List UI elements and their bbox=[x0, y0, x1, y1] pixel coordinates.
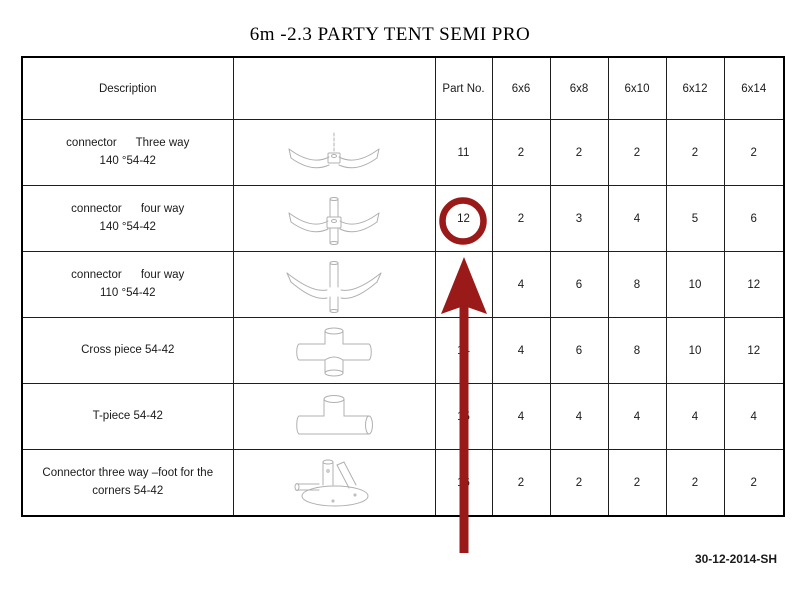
description-cell: Cross piece 54-42 bbox=[22, 318, 233, 384]
qty-cell: 2 bbox=[492, 186, 550, 252]
col-header-illustration bbox=[233, 57, 435, 120]
qty-cell: 4 bbox=[666, 384, 724, 450]
qty-cell: 10 bbox=[666, 318, 724, 384]
table-row: connector Three way 140 °54-42 11 2 2 2 … bbox=[22, 120, 784, 186]
three-way-connector-140-icon bbox=[279, 125, 389, 181]
qty-cell: 6 bbox=[724, 186, 784, 252]
document-page: 6m -2.3 PARTY TENT SEMI PRO Description … bbox=[0, 0, 800, 600]
qty-cell: 8 bbox=[608, 252, 666, 318]
col-header-6x12: 6x12 bbox=[666, 57, 724, 120]
four-way-connector-140-icon bbox=[279, 191, 389, 247]
table-row: connector four way 140 °54-42 12 2 3 4 5… bbox=[22, 186, 784, 252]
table-row: connector four way 110 °54-42 4 6 8 10 1… bbox=[22, 252, 784, 318]
qty-cell: 5 bbox=[666, 186, 724, 252]
illustration-cell bbox=[233, 450, 435, 517]
illustration-cell bbox=[233, 120, 435, 186]
table-row: Connector three way –foot for the corner… bbox=[22, 450, 784, 517]
illustration-cell bbox=[233, 318, 435, 384]
qty-cell: 12 bbox=[724, 318, 784, 384]
qty-cell: 6 bbox=[550, 252, 608, 318]
qty-cell: 2 bbox=[666, 450, 724, 517]
table-row: Cross piece 54-42 14 4 6 8 10 bbox=[22, 318, 784, 384]
part-no-cell bbox=[435, 252, 492, 318]
qty-cell: 6 bbox=[550, 318, 608, 384]
qty-cell: 2 bbox=[550, 450, 608, 517]
qty-cell: 2 bbox=[608, 120, 666, 186]
part-no-cell: 15 bbox=[435, 384, 492, 450]
col-header-6x14: 6x14 bbox=[724, 57, 784, 120]
qty-cell: 10 bbox=[666, 252, 724, 318]
qty-cell: 2 bbox=[550, 120, 608, 186]
qty-cell: 2 bbox=[608, 450, 666, 517]
table-row: T-piece 54-42 15 4 4 4 4 4 bbox=[22, 384, 784, 450]
qty-cell: 4 bbox=[492, 252, 550, 318]
qty-cell: 12 bbox=[724, 252, 784, 318]
qty-cell: 4 bbox=[608, 186, 666, 252]
qty-cell: 4 bbox=[724, 384, 784, 450]
description-cell: T-piece 54-42 bbox=[22, 384, 233, 450]
description-cell: Connector three way –foot for the corner… bbox=[22, 450, 233, 517]
qty-cell: 2 bbox=[492, 450, 550, 517]
col-header-6x6: 6x6 bbox=[492, 57, 550, 120]
t-piece-icon bbox=[279, 389, 389, 445]
description-cell: connector Three way 140 °54-42 bbox=[22, 120, 233, 186]
illustration-cell bbox=[233, 384, 435, 450]
qty-cell: 4 bbox=[492, 384, 550, 450]
qty-cell: 2 bbox=[724, 450, 784, 517]
part-no-cell: 12 bbox=[435, 186, 492, 252]
illustration-cell bbox=[233, 252, 435, 318]
foot-connector-icon bbox=[279, 455, 389, 511]
part-no-cell: 11 bbox=[435, 120, 492, 186]
part-no-cell: 14 bbox=[435, 318, 492, 384]
qty-cell: 4 bbox=[492, 318, 550, 384]
col-header-part-no: Part No. bbox=[435, 57, 492, 120]
part-no-cell: 16 bbox=[435, 450, 492, 517]
document-reference: 30-12-2014-SH bbox=[695, 552, 777, 566]
col-header-6x10: 6x10 bbox=[608, 57, 666, 120]
four-way-connector-110-icon bbox=[279, 257, 389, 313]
qty-cell: 2 bbox=[666, 120, 724, 186]
qty-cell: 2 bbox=[724, 120, 784, 186]
illustration-cell bbox=[233, 186, 435, 252]
qty-cell: 2 bbox=[492, 120, 550, 186]
header-row: Description Part No. 6x6 6x8 6x10 6x12 6… bbox=[22, 57, 784, 120]
qty-cell: 8 bbox=[608, 318, 666, 384]
page-title: 6m -2.3 PARTY TENT SEMI PRO bbox=[0, 24, 780, 46]
description-cell: connector four way 140 °54-42 bbox=[22, 186, 233, 252]
col-header-description: Description bbox=[22, 57, 233, 120]
cross-piece-icon bbox=[279, 323, 389, 379]
parts-table: Description Part No. 6x6 6x8 6x10 6x12 6… bbox=[21, 56, 785, 517]
qty-cell: 3 bbox=[550, 186, 608, 252]
qty-cell: 4 bbox=[608, 384, 666, 450]
qty-cell: 4 bbox=[550, 384, 608, 450]
col-header-6x8: 6x8 bbox=[550, 57, 608, 120]
description-cell: connector four way 110 °54-42 bbox=[22, 252, 233, 318]
